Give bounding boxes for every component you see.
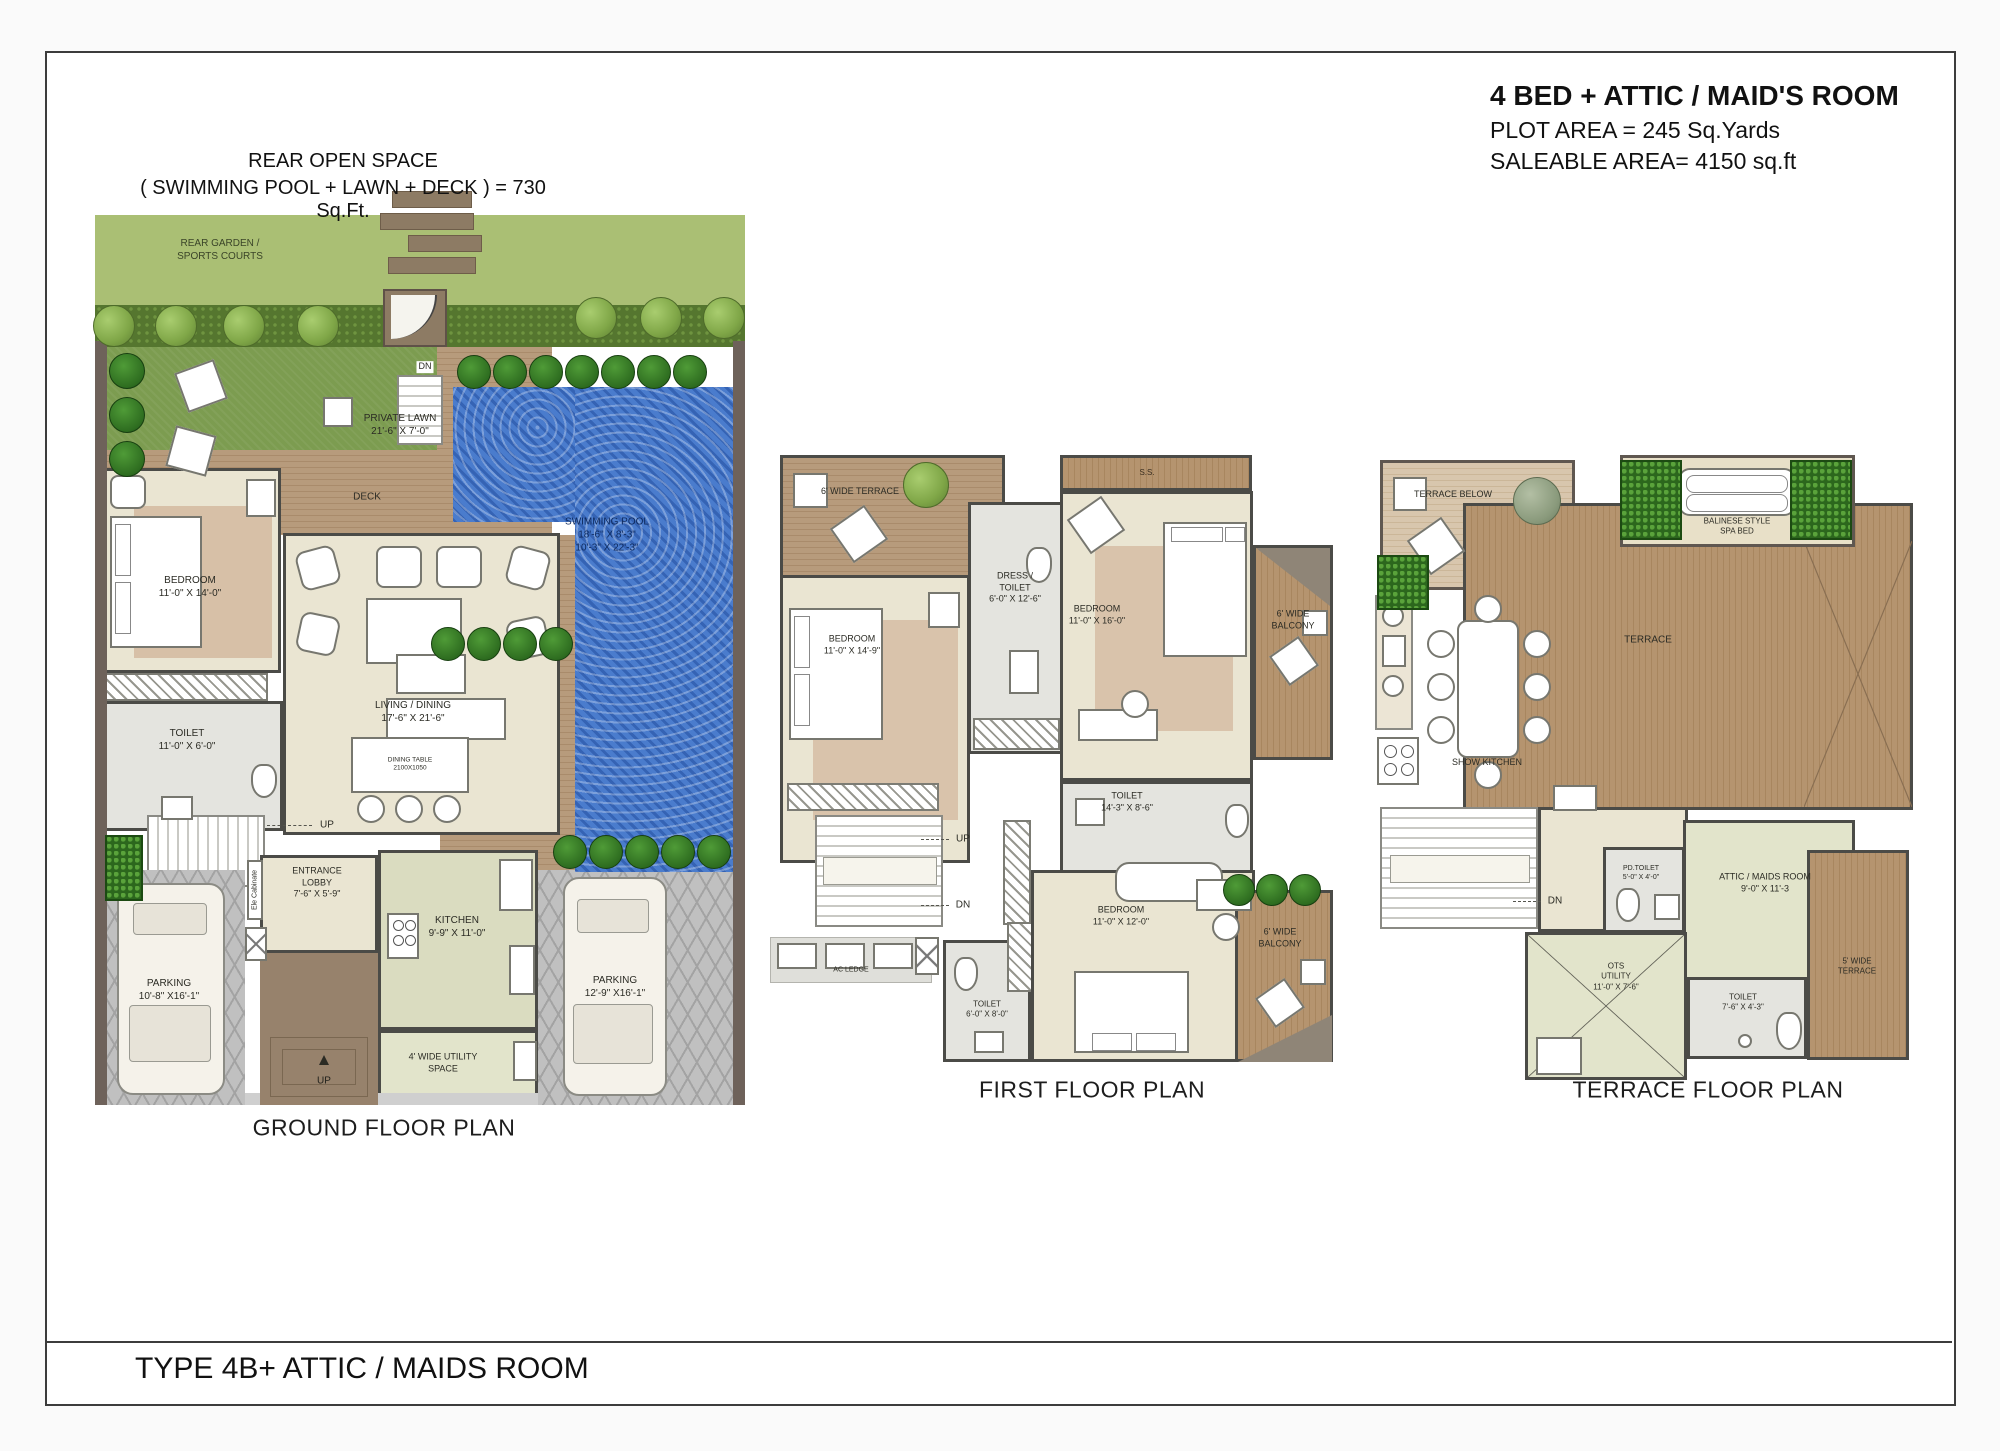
- lounge-chair: [1255, 978, 1305, 1028]
- bush-icon: [431, 627, 465, 661]
- rear-open-space-note: REAR OPEN SPACE ( SWIMMING POOL + LAWN +…: [113, 150, 573, 223]
- tf-toilet: [1687, 977, 1807, 1059]
- pillow: [1225, 527, 1245, 542]
- armchair: [110, 475, 146, 509]
- dining-chair: [1427, 716, 1455, 744]
- stepping-stone: [388, 257, 476, 274]
- pillow: [794, 674, 810, 726]
- ground-floor-plan: DN PRIVATE LAWN21'-6" X 7'-0" DECK SWIMM…: [95, 215, 745, 1105]
- dresser: [928, 592, 960, 628]
- tf-terrace-5ft: [1807, 850, 1909, 1060]
- seat: [1382, 635, 1406, 667]
- private-lawn-label: PRIVATE LAWN21'-6" X 7'-0": [364, 412, 437, 438]
- desk: [1078, 709, 1158, 741]
- dining-chair: [1474, 595, 1502, 623]
- kitchen: [378, 850, 538, 1030]
- bush-icon: [503, 627, 537, 661]
- wc-icon: [1616, 888, 1640, 922]
- spa-bed-label: BALINESE STYLESPA BED: [1704, 517, 1771, 538]
- ff-dn-label: DN: [956, 899, 970, 912]
- wardrobe: [103, 673, 268, 701]
- ground-toilet-label: TOILET11'-0" X 6'-0": [159, 727, 216, 753]
- tf-terrace-5ft-label: 5' WIDETERRACE: [1838, 957, 1876, 978]
- basin-icon: [161, 796, 193, 820]
- tf-pd-toilet: [1603, 847, 1685, 933]
- boundary-wall-right: [733, 341, 745, 1105]
- stove-icon: [387, 913, 419, 959]
- ff-bedroom-left-label: BEDROOM11'-0" X 14'-9": [824, 633, 880, 656]
- armchair: [294, 544, 343, 593]
- stair-leader-line: [921, 839, 949, 840]
- ground-floor-caption: GROUND FLOOR PLAN: [253, 1115, 516, 1142]
- stair-leader-line: [267, 825, 312, 826]
- tree-icon: [575, 297, 617, 339]
- dresser: [246, 479, 276, 517]
- bush-icon: [673, 355, 707, 389]
- ff-ss-label: S.S.: [1139, 468, 1154, 478]
- bush-icon: [539, 627, 573, 661]
- dining-chair: [433, 795, 461, 823]
- living-dining-label: LIVING / DINING17'-6" X 21'-6": [375, 699, 451, 725]
- title-block: 4 BED + ATTIC / MAID'S ROOM PLOT AREA = …: [1490, 80, 1930, 175]
- wc-icon: [251, 764, 277, 798]
- parking-right-label: PARKING12'-9" X16'-1": [585, 974, 645, 1000]
- terrace-floor-caption: TERRACE FLOOR PLAN: [1573, 1077, 1844, 1104]
- lounge-counter: [1375, 595, 1413, 730]
- utility-sink-icon: [513, 1041, 537, 1081]
- ground-toilet: [103, 701, 283, 831]
- bush-icon: [529, 355, 563, 389]
- pillow: [1171, 527, 1223, 542]
- footer-type-label: TYPE 4B+ ATTIC / MAIDS ROOM: [135, 1352, 589, 1386]
- bush-icon: [1223, 874, 1255, 906]
- stair-leader-line: [1513, 901, 1541, 902]
- utility-sink-icon: [1536, 1037, 1582, 1075]
- ac-ledge: [770, 937, 932, 983]
- bed: [789, 608, 883, 740]
- ff-bedroom-right: [1060, 491, 1253, 781]
- ac-unit: [777, 943, 817, 969]
- ground-dn-label: DN: [417, 361, 434, 373]
- wardrobe: [973, 718, 1060, 750]
- armchair: [294, 610, 341, 657]
- show-kitchen-label: SHOW KITCHEN: [1452, 757, 1522, 769]
- tf-toilet-label: TOILET7'-6" X 4'-3": [1722, 993, 1764, 1014]
- first-floor-plan: 6' WIDE TERRACE S.S. DRESS /TOILET6'-0" …: [775, 450, 1335, 1090]
- tf-staircase: [1380, 807, 1538, 929]
- saleable-area-text: SALEABLE AREA= 4150 sq.ft: [1490, 148, 1930, 175]
- ff-staircase: [815, 815, 943, 927]
- kitchen-sink-icon: [1553, 785, 1597, 811]
- footer-divider: [45, 1341, 1952, 1343]
- bush-icon: [601, 355, 635, 389]
- bed: [1074, 971, 1189, 1053]
- stool: [1382, 675, 1404, 697]
- utility-label: 4' WIDE UTILITYSPACE: [409, 1051, 478, 1074]
- planter: [1790, 460, 1852, 540]
- bush-icon: [109, 441, 145, 477]
- stair-leader-line: [921, 905, 949, 906]
- bush-icon: [625, 835, 659, 869]
- desk-chair: [1121, 690, 1149, 718]
- bush-icon: [553, 835, 587, 869]
- tree-icon: [93, 305, 135, 347]
- plot-area-text: PLOT AREA = 245 Sq.Yards: [1490, 117, 1930, 144]
- shaft-box: [245, 927, 267, 961]
- dining-chair: [1427, 673, 1455, 701]
- tree-icon: [297, 305, 339, 347]
- rear-open-space-line2: ( SWIMMING POOL + LAWN + DECK ) = 730 Sq…: [113, 177, 573, 223]
- stove-icon: [1377, 737, 1419, 785]
- bush-icon: [661, 835, 695, 869]
- closet: [1007, 922, 1033, 992]
- dining-chair: [357, 795, 385, 823]
- tf-terrace-label: TERRACE: [1624, 634, 1672, 647]
- garden-gate: [383, 289, 447, 347]
- ff-toilet-small-label: TOILET6'-0" X 8'-0": [966, 1000, 1008, 1021]
- floor-plan-sheet: { "page": { "header": { "title": "4 BED …: [0, 0, 2000, 1451]
- bush-icon: [109, 353, 145, 389]
- terrace-table: [1300, 959, 1326, 985]
- lounge-chair: [1269, 636, 1319, 686]
- basin-icon: [1654, 894, 1680, 920]
- lawn-table: [323, 397, 353, 427]
- entrance-lobby-label: ENTRANCELOBBY7'-6" X 5'-9": [292, 865, 342, 900]
- dining-chair: [1523, 673, 1551, 701]
- fridge-icon: [499, 859, 533, 911]
- planter: [105, 835, 143, 901]
- sink-icon: [509, 945, 535, 995]
- dining-chair: [1427, 630, 1455, 658]
- balcony-canopy: [1238, 1015, 1332, 1062]
- wc-icon: [1776, 1012, 1802, 1050]
- swimming-pool-lower: [575, 387, 735, 872]
- ff-balcony-bottom: [1235, 890, 1333, 1062]
- tf-ots-label: OTSUTILITY11'-0" X 7'-6": [1593, 961, 1639, 992]
- bush-icon: [589, 835, 623, 869]
- tree-icon: [155, 305, 197, 347]
- pillow: [1136, 1033, 1176, 1051]
- ele-cabinate-label: Ele Cabinate: [250, 870, 259, 910]
- closet: [1003, 820, 1031, 925]
- tf-pd-toilet-label: PD.TOILET5'-0" X 4'-0": [1623, 864, 1659, 882]
- dining-chair: [1523, 716, 1551, 744]
- ff-balcony-right: [1253, 545, 1333, 760]
- first-floor-caption: FIRST FLOOR PLAN: [979, 1077, 1205, 1104]
- ff-toilet-master-label: TOILET14'-3" X 8'-6": [1101, 790, 1153, 813]
- planter: [1377, 555, 1429, 610]
- porch-up-label: UP: [317, 1075, 331, 1088]
- ac-ledge-label: AC LEDGE: [833, 965, 868, 974]
- tf-ots-utility: [1525, 932, 1687, 1080]
- ff-terrace-label: 6' WIDE TERRACE: [821, 486, 899, 498]
- pillow: [794, 616, 810, 668]
- stair-landing: [1390, 855, 1530, 883]
- ff-balcony-right-label: 6' WIDEBALCONY: [1271, 608, 1314, 631]
- terrace-floor-plan: TERRACE BELOW TERRACE BALINESE STYLESPA …: [1375, 455, 1935, 1080]
- dining-table-label: DINING TABLE2100X1050: [388, 757, 433, 774]
- ff-dress-toilet-label: DRESS /TOILET6'-0" X 12'-6": [989, 570, 1041, 605]
- tf-attic-label: ATTIC / MAIDS ROOM9'-0" X 11'-3: [1719, 871, 1811, 894]
- shower-drain-icon: [1738, 1034, 1752, 1048]
- basin-icon: [1009, 650, 1039, 694]
- boundary-wall-left: [95, 341, 107, 1105]
- tf-terrace-below-label: TERRACE BELOW: [1414, 489, 1492, 501]
- bed: [1163, 522, 1247, 657]
- balcony-canopy: [1256, 548, 1330, 606]
- bush-icon: [565, 355, 599, 389]
- outdoor-dining-table: [1457, 620, 1519, 758]
- stair-landing: [823, 857, 937, 885]
- sofa-seat: [436, 546, 482, 588]
- ff-bedroom-right-label: BEDROOM11'-0" X 16'-0": [1069, 603, 1125, 626]
- ground-up-label: UP: [320, 819, 334, 832]
- tree-icon: [903, 462, 949, 508]
- bush-icon: [637, 355, 671, 389]
- spa-bed: [1678, 468, 1796, 516]
- tree-icon: [640, 297, 682, 339]
- bush-icon: [1256, 874, 1288, 906]
- stepping-stone: [408, 235, 482, 252]
- rear-garden-label: REAR GARDEN /SPORTS COURTS: [177, 237, 263, 263]
- ground-bedroom: [103, 468, 281, 673]
- up-arrow-icon: [319, 1055, 329, 1065]
- ac-unit: [873, 943, 913, 969]
- bush-icon: [1289, 874, 1321, 906]
- sofa-seat: [376, 546, 422, 588]
- ff-balcony-bottom-label: 6' WIDEBALCONY: [1258, 926, 1301, 949]
- lounge-chair: [830, 505, 888, 563]
- ff-dress-toilet: [968, 502, 1065, 754]
- ff-bedroom-bottom-label: BEDROOM11'-0" X 12'-0": [1093, 904, 1149, 927]
- shaft-box: [915, 937, 939, 975]
- bush-icon: [697, 835, 731, 869]
- bush-icon: [467, 627, 501, 661]
- ff-ss-ledge: [1060, 455, 1252, 491]
- swimming-pool-label: SWIMMING POOL18'-6" X 8'-3"10'-3" X 22'-…: [565, 516, 649, 555]
- tree-icon: [703, 297, 745, 339]
- bush-icon: [109, 397, 145, 433]
- spa-pillow: [1686, 494, 1788, 512]
- planter: [1620, 460, 1682, 540]
- spa-pillow: [1686, 475, 1788, 493]
- gate-door-swing: [391, 295, 437, 339]
- tree-icon: [223, 305, 265, 347]
- kitchen-label: KITCHEN9'-9" X 11'-0": [429, 914, 486, 940]
- bush-icon: [493, 355, 527, 389]
- dining-chair: [1523, 630, 1551, 658]
- rear-open-space-line1: REAR OPEN SPACE: [113, 150, 573, 173]
- ground-bedroom-label: BEDROOM11'-0" X 14'-0": [159, 574, 221, 600]
- pillow: [115, 524, 131, 576]
- parking-left-label: PARKING10'-8" X16'-1": [139, 977, 199, 1003]
- basin-icon: [974, 1031, 1004, 1053]
- armchair: [504, 544, 553, 593]
- deck-label: DECK: [353, 491, 381, 504]
- pillow: [115, 582, 131, 634]
- wc-icon: [1225, 804, 1249, 838]
- wardrobe: [787, 783, 939, 811]
- bush-icon: [457, 355, 491, 389]
- pergola-deck: [1804, 541, 1912, 807]
- wc-icon: [954, 957, 978, 991]
- tree-icon: [1513, 477, 1561, 525]
- center-table: [396, 654, 466, 694]
- desk-chair: [1212, 913, 1240, 941]
- unit-title: 4 BED + ATTIC / MAID'S ROOM: [1490, 80, 1930, 112]
- dining-chair: [395, 795, 423, 823]
- tf-dn-label: DN: [1548, 895, 1562, 908]
- pillow: [1092, 1033, 1132, 1051]
- ff-up-label: UP: [956, 833, 970, 846]
